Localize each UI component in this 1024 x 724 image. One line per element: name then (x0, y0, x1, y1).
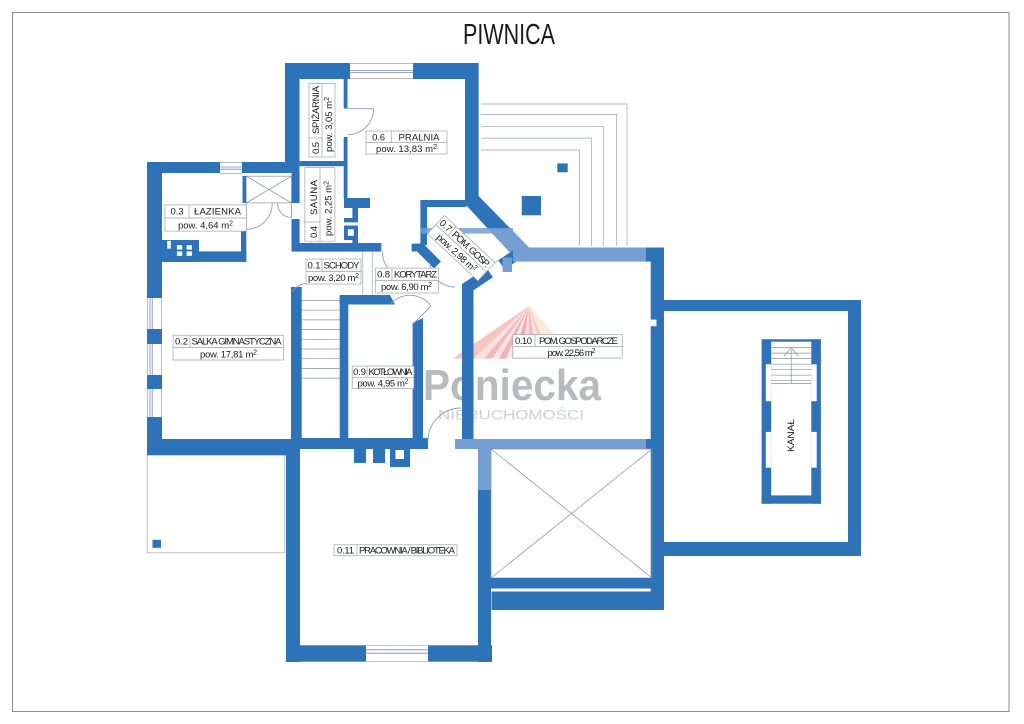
svg-text:0.1: 0.1 (308, 261, 321, 272)
svg-text:SALKA GIMNASTYCZNA: SALKA GIMNASTYCZNA (192, 337, 283, 348)
svg-text:Poniecka: Poniecka (423, 361, 601, 410)
svg-text:0.11: 0.11 (337, 545, 354, 556)
svg-text:KANAŁ: KANAŁ (786, 419, 797, 452)
svg-text:pow. 22,56 m2: pow. 22,56 m2 (548, 348, 596, 359)
svg-text:0.5: 0.5 (311, 142, 322, 154)
svg-text:SPIŻARNIA: SPIŻARNIA (311, 85, 322, 134)
svg-text:POM. GOSPODARCZE: POM. GOSPODARCZE (539, 336, 618, 347)
svg-text:0.10: 0.10 (515, 336, 532, 347)
svg-text:ŁAZIENKA: ŁAZIENKA (194, 207, 242, 218)
svg-text:0.2: 0.2 (175, 337, 188, 348)
svg-text:PRACOWNIA / BIBLIOTEKA: PRACOWNIA / BIBLIOTEKA (359, 545, 456, 556)
svg-text:pow. 4,64 m2: pow. 4,64 m2 (178, 220, 233, 231)
svg-text:0.4: 0.4 (309, 226, 320, 238)
svg-text:KOTŁOWNIA: KOTŁOWNIA (369, 367, 414, 378)
svg-text:PRALNIA: PRALNIA (399, 132, 441, 143)
svg-text:pow. 13,83 m2: pow. 13,83 m2 (376, 144, 437, 155)
svg-text:pow. 3,20 m2: pow. 3,20 m2 (308, 273, 359, 284)
svg-text:0.8: 0.8 (377, 270, 390, 281)
svg-text:pow. 6,90 m2: pow. 6,90 m2 (381, 282, 432, 293)
svg-text:KORYTARZ: KORYTARZ (394, 270, 437, 281)
svg-text:pow. 3,05 m2: pow. 3,05 m2 (324, 97, 335, 152)
svg-text:PIWNICA: PIWNICA (463, 19, 555, 51)
svg-text:pow. 4,95 m2: pow. 4,95 m2 (358, 378, 409, 389)
svg-text:pow. 17,81 m2: pow. 17,81 m2 (200, 349, 257, 360)
svg-text:SAUNA: SAUNA (309, 179, 320, 215)
svg-text:NIERUCHOMOŚCI: NIERUCHOMOŚCI (438, 408, 584, 423)
svg-text:SCHODY: SCHODY (324, 261, 361, 272)
svg-text:0.6: 0.6 (372, 132, 385, 143)
svg-text:0.3: 0.3 (171, 207, 184, 218)
svg-text:0.9: 0.9 (353, 367, 366, 378)
svg-text:pow. 2,25 m2: pow. 2,25 m2 (324, 181, 335, 236)
